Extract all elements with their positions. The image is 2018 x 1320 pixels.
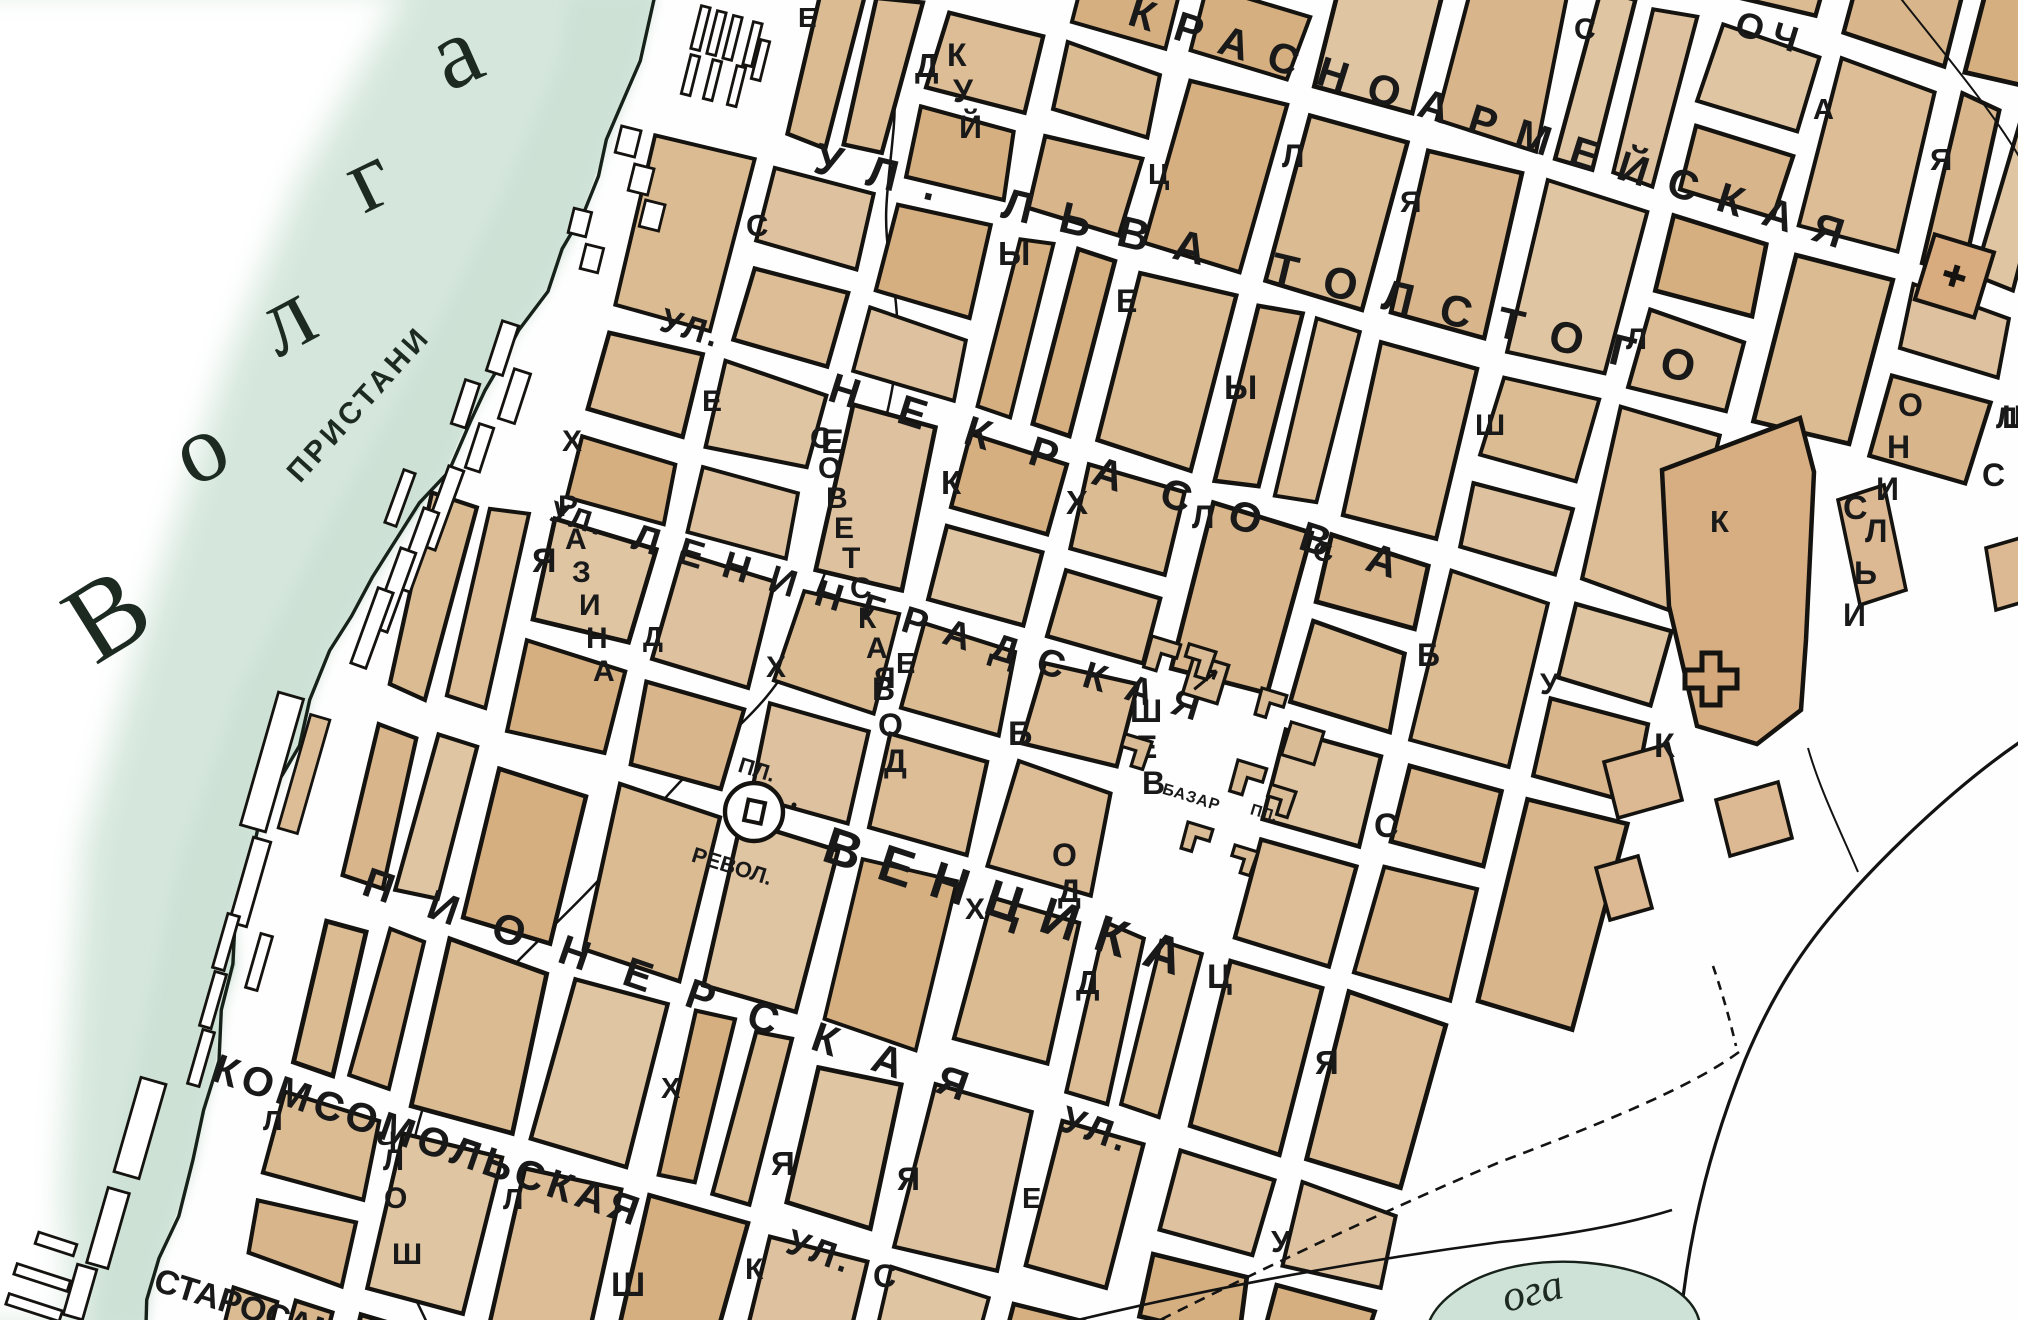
svg-text:Л: Л [1192, 499, 1214, 535]
svg-text:С: С [1843, 489, 1868, 527]
svg-text:У: У [1540, 668, 1559, 701]
svg-text:Е: Е [834, 512, 854, 545]
svg-text:Я: Я [532, 542, 556, 580]
svg-text:Л: Л [1865, 513, 1887, 549]
svg-text:О: О [878, 707, 903, 743]
svg-text:Л: Л [503, 1184, 523, 1216]
svg-text:С: С [873, 1258, 896, 1294]
svg-text:Е: Е [821, 423, 844, 461]
svg-text:С: С [1574, 13, 1596, 46]
svg-text:К: К [1654, 727, 1675, 765]
svg-text:В: В [826, 482, 848, 515]
svg-text:Ш: Ш [1130, 693, 1162, 729]
svg-text:А: А [866, 632, 888, 665]
svg-text:Х: Х [661, 1073, 681, 1105]
svg-text:К: К [858, 602, 877, 635]
svg-text:Й: Й [959, 109, 982, 145]
svg-text:Е: Е [896, 648, 915, 680]
svg-text:С: С [746, 208, 768, 243]
svg-text:Л: Л [1996, 402, 2017, 435]
svg-text:И: И [579, 589, 601, 622]
svg-text:Ш: Ш [611, 1266, 645, 1304]
svg-text:К: К [1710, 504, 1729, 539]
svg-text:Д: Д [1058, 873, 1081, 909]
svg-text:Л: Л [383, 1144, 404, 1177]
svg-text:З: З [572, 556, 591, 589]
svg-text:У: У [953, 73, 974, 109]
svg-text:А: А [593, 655, 615, 688]
svg-text:К: К [745, 1253, 764, 1286]
svg-text:Е: Е [1116, 283, 1137, 319]
svg-text:Е: Е [798, 2, 817, 33]
svg-text:Я: Я [1315, 1044, 1339, 1081]
svg-text:О: О [384, 1182, 407, 1215]
svg-text:С: С [1313, 536, 1333, 567]
svg-text:Я: Я [1400, 186, 1422, 219]
svg-text:Я: Я [897, 1161, 920, 1197]
svg-text:Ы: Ы [1224, 369, 1257, 407]
svg-text:Л: Л [1626, 323, 1647, 356]
svg-text:Ь: Ь [1854, 555, 1877, 591]
svg-text:Ш: Ш [392, 1238, 422, 1271]
svg-text:В: В [872, 671, 895, 707]
svg-text:Т: Т [842, 542, 860, 575]
svg-text:Ш: Ш [1475, 409, 1505, 442]
svg-text:Ц: Ц [1148, 159, 1169, 191]
svg-text:Д: Д [643, 621, 663, 652]
svg-text:Р: Р [558, 490, 578, 523]
svg-text:Л: Л [1282, 138, 1304, 174]
svg-text:Я: Я [771, 1145, 795, 1182]
svg-text:Д: Д [915, 47, 939, 84]
svg-text:Ц: Ц [1207, 958, 1232, 996]
svg-text:О: О [1898, 387, 1923, 423]
svg-text:С: С [1982, 457, 2005, 493]
svg-text:Я: Я [1930, 142, 1952, 177]
svg-text:Е: Е [702, 385, 722, 418]
svg-text:Х: Х [562, 425, 582, 458]
svg-text:А: А [565, 523, 587, 556]
svg-text:Х: Х [965, 893, 985, 926]
svg-text:Х: Х [766, 651, 786, 684]
svg-text:О: О [1052, 837, 1077, 873]
svg-text:И: И [1843, 597, 1866, 633]
svg-text:К: К [947, 37, 967, 73]
svg-text:Б: Б [1008, 715, 1032, 753]
svg-text:Д: Д [884, 743, 907, 779]
svg-text:Е: Е [1022, 1183, 1041, 1215]
svg-text:К: К [941, 464, 962, 501]
svg-text:Д: Д [1076, 964, 1100, 1001]
svg-text:И: И [1876, 471, 1899, 507]
svg-text:У: У [1271, 1224, 1291, 1259]
svg-text:С: С [1374, 807, 1399, 845]
svg-text:Х: Х [1066, 484, 1088, 521]
svg-text:С: С [850, 572, 872, 605]
svg-text:А: А [1813, 94, 1834, 126]
svg-text:Ы: Ы [998, 235, 1030, 272]
svg-text:Б: Б [1417, 637, 1440, 673]
svg-text:Н: Н [1887, 429, 1910, 465]
svg-text:Н: Н [586, 622, 608, 655]
svg-text:Л: Л [263, 1105, 283, 1136]
